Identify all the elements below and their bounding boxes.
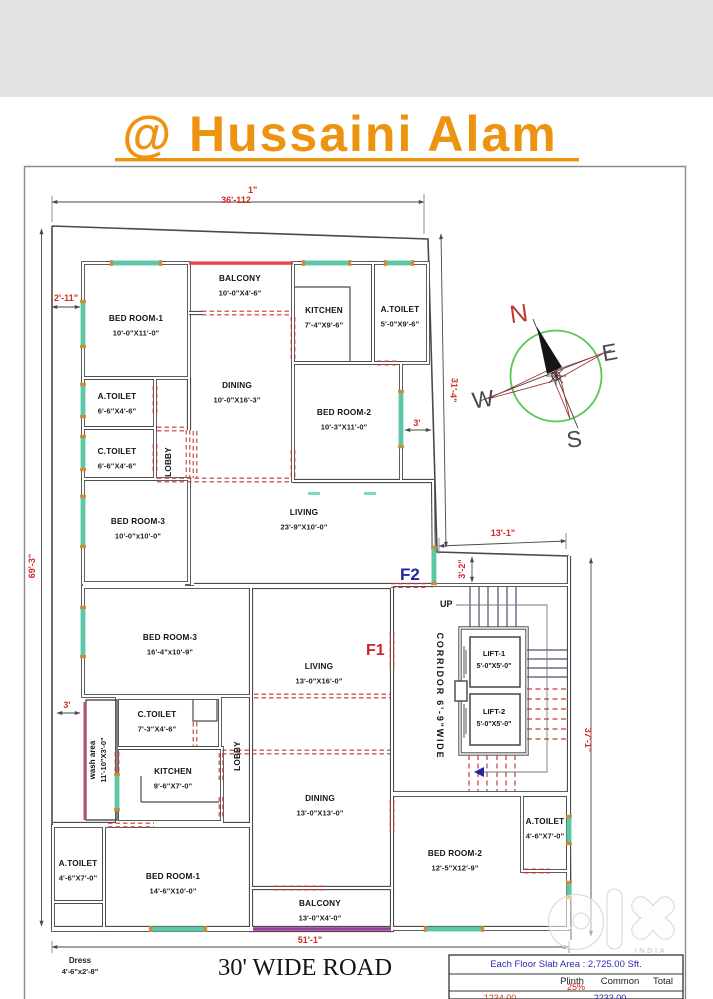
svg-text:36'-112: 36'-112 — [221, 195, 251, 205]
svg-text:5'-0"X9'-6": 5'-0"X9'-6" — [381, 320, 420, 329]
svg-text:1234.00: 1234.00 — [484, 993, 517, 999]
svg-text:BED ROOM-3: BED ROOM-3 — [143, 633, 198, 642]
svg-text:N: N — [508, 299, 530, 329]
svg-text:BALCONY: BALCONY — [299, 899, 341, 908]
svg-text:W: W — [470, 385, 495, 414]
svg-text:A.TOILET: A.TOILET — [59, 859, 98, 868]
svg-text:BED ROOM-2: BED ROOM-2 — [428, 849, 483, 858]
svg-text:7'-4"X9'-6": 7'-4"X9'-6" — [305, 321, 344, 330]
svg-text:BED ROOM-1: BED ROOM-1 — [146, 872, 201, 881]
svg-text:69'-3": 69'-3" — [27, 554, 37, 578]
svg-text:4'-6"X7'-0": 4'-6"X7'-0" — [59, 874, 98, 883]
svg-text:10'-3"X11'-0": 10'-3"X11'-0" — [321, 423, 368, 432]
svg-text:LOBBY: LOBBY — [164, 447, 173, 477]
svg-text:2'-11": 2'-11" — [54, 293, 78, 303]
svg-text:1": 1" — [248, 185, 257, 195]
svg-text:23'-9"X10'-0": 23'-9"X10'-0" — [280, 523, 327, 532]
svg-text:37'-1": 37'-1" — [583, 728, 593, 752]
svg-text:Total: Total — [653, 976, 673, 987]
svg-text:16'-4"x10'-9": 16'-4"x10'-9" — [147, 648, 194, 657]
svg-text:13'-0"X4'-0": 13'-0"X4'-0" — [299, 914, 342, 923]
svg-text:DINING: DINING — [305, 794, 335, 803]
svg-text:2233.00: 2233.00 — [594, 993, 627, 999]
svg-text:51'-1": 51'-1" — [298, 935, 322, 945]
svg-text:F2: F2 — [400, 565, 420, 584]
svg-text:INDIA: INDIA — [635, 946, 668, 955]
svg-text:13'-0"X16'-0": 13'-0"X16'-0" — [295, 677, 342, 686]
svg-text:Each Floor Slab Area : 2,725.0: Each Floor Slab Area : 2,725.00 Sft. — [490, 959, 642, 970]
svg-text:13'-0"X13'-0": 13'-0"X13'-0" — [296, 809, 343, 818]
svg-text:BED ROOM-2: BED ROOM-2 — [317, 408, 372, 417]
svg-text:DINING: DINING — [222, 381, 252, 390]
svg-text:CORRIDOR 6'-9"WIDE: CORRIDOR 6'-9"WIDE — [435, 633, 445, 760]
svg-text:LIVING: LIVING — [305, 662, 334, 671]
svg-text:10'-0"X11'-0": 10'-0"X11'-0" — [113, 329, 160, 338]
svg-text:LIFT-2: LIFT-2 — [483, 707, 505, 716]
svg-text:A.TOILET: A.TOILET — [98, 392, 137, 401]
svg-text:A.TOILET: A.TOILET — [526, 817, 565, 826]
svg-text:wash area: wash area — [88, 740, 97, 780]
svg-text:10'-0"X16'-3": 10'-0"X16'-3" — [213, 396, 260, 405]
svg-text:LIVING: LIVING — [290, 508, 319, 517]
svg-text:Dress: Dress — [69, 956, 92, 965]
svg-text:3': 3' — [63, 700, 70, 710]
svg-text:12'-5"X12'-9": 12'-5"X12'-9" — [431, 864, 478, 873]
svg-text:10'-0"X4'-6": 10'-0"X4'-6" — [219, 289, 262, 298]
svg-text:13'-1": 13'-1" — [491, 528, 515, 538]
svg-text:30' WIDE ROAD: 30' WIDE ROAD — [218, 954, 392, 981]
svg-text:BALCONY: BALCONY — [219, 274, 261, 283]
svg-text:5'-0"X5'-0": 5'-0"X5'-0" — [477, 721, 512, 728]
svg-text:31'-4": 31'-4" — [448, 378, 460, 403]
svg-text:BED ROOM-1: BED ROOM-1 — [109, 314, 164, 323]
svg-text:C.TOILET: C.TOILET — [98, 447, 137, 456]
svg-text:LOBBY: LOBBY — [233, 741, 242, 771]
svg-text:4'-6"x2'-8": 4'-6"x2'-8" — [62, 967, 99, 976]
svg-text:LIFT-1: LIFT-1 — [483, 649, 506, 658]
svg-text:KITCHEN: KITCHEN — [154, 767, 192, 776]
svg-text:UP: UP — [440, 599, 453, 609]
svg-text:7'-3"X4'-6": 7'-3"X4'-6" — [138, 725, 177, 734]
svg-text:9'-6"X7'-0": 9'-6"X7'-0" — [154, 782, 193, 791]
svg-text:5'-0"X5'-0": 5'-0"X5'-0" — [477, 663, 512, 670]
svg-text:Common: Common — [601, 976, 640, 987]
svg-text:3'-2": 3'-2" — [457, 559, 467, 578]
svg-text:11'-10"X3'-0": 11'-10"X3'-0" — [99, 737, 108, 783]
svg-text:@ Hussaini Alam: @ Hussaini Alam — [122, 106, 557, 162]
svg-text:25%: 25% — [567, 982, 585, 992]
svg-text:14'-6"X10'-0": 14'-6"X10'-0" — [149, 887, 196, 896]
svg-text:6'-6"X4'-6": 6'-6"X4'-6" — [98, 407, 137, 416]
svg-text:A.TOILET: A.TOILET — [381, 305, 420, 314]
svg-text:3': 3' — [413, 418, 420, 428]
svg-text:4'-6"X7'-0": 4'-6"X7'-0" — [526, 832, 565, 841]
svg-text:BED ROOM-3: BED ROOM-3 — [111, 517, 166, 526]
svg-text:6'-6"X4'-6": 6'-6"X4'-6" — [98, 462, 137, 471]
svg-text:C.TOILET: C.TOILET — [138, 710, 177, 719]
svg-text:S: S — [565, 425, 583, 452]
svg-text:KITCHEN: KITCHEN — [305, 306, 343, 315]
svg-text:10'-0"x10'-0": 10'-0"x10'-0" — [115, 532, 162, 541]
svg-text:F1: F1 — [366, 642, 385, 659]
